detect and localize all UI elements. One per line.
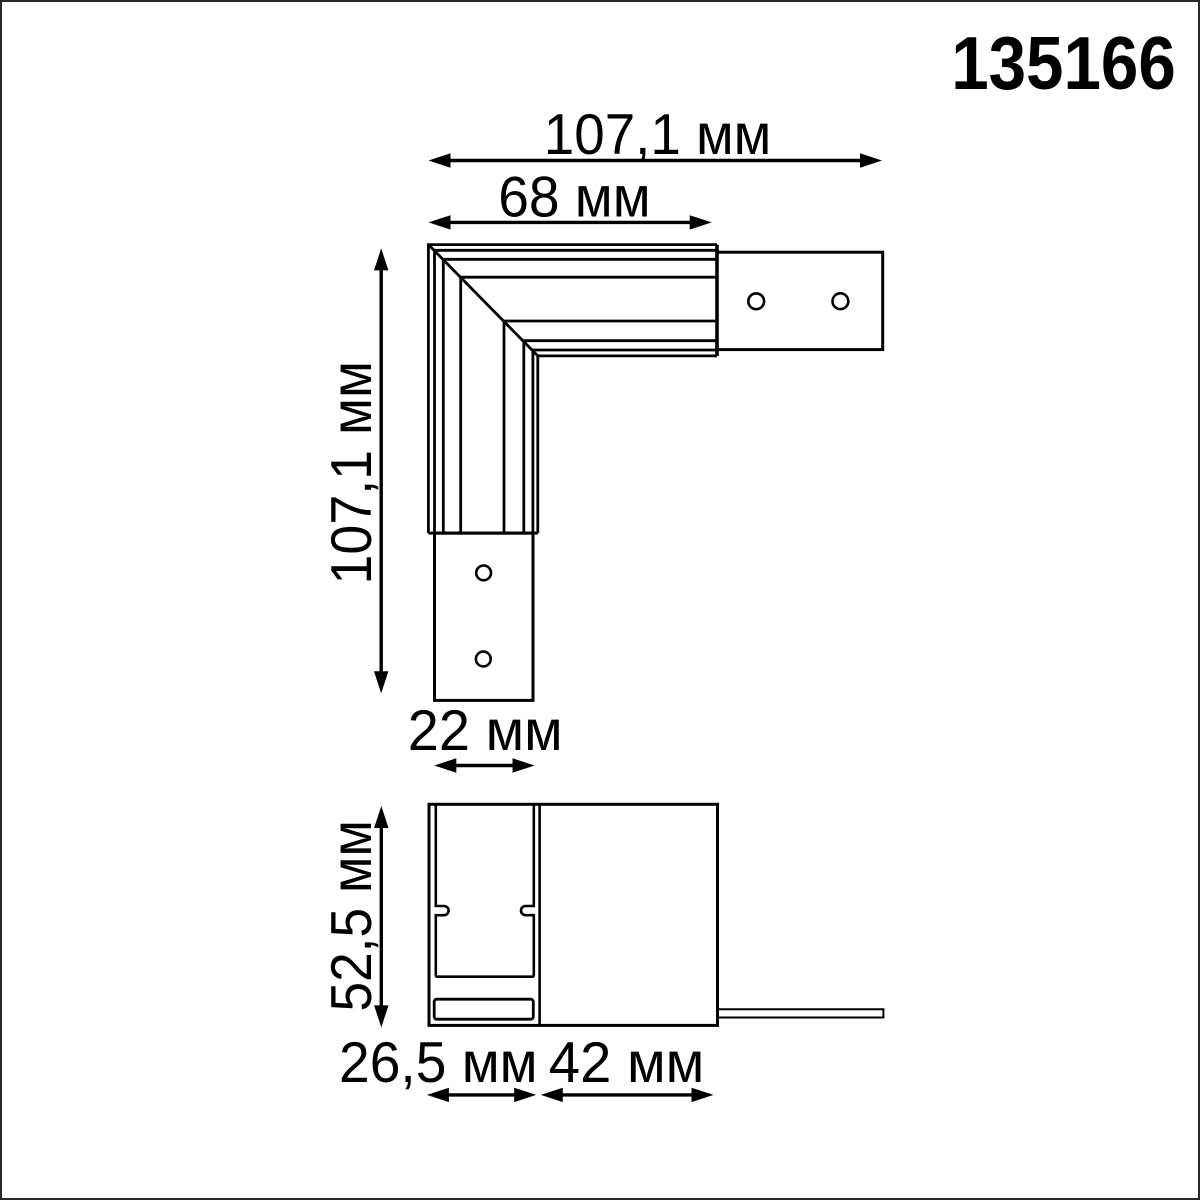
svg-text:26,5 мм: 26,5 мм [339,1031,538,1095]
svg-text:135166: 135166 [951,22,1176,106]
svg-text:107,1 мм: 107,1 мм [320,361,384,585]
svg-text:107,1 мм: 107,1 мм [544,103,772,167]
svg-text:52,5 мм: 52,5 мм [320,820,384,1012]
svg-text:22 мм: 22 мм [408,699,563,763]
svg-text:42 мм: 42 мм [549,1031,705,1095]
svg-text:68 мм: 68 мм [498,166,650,230]
